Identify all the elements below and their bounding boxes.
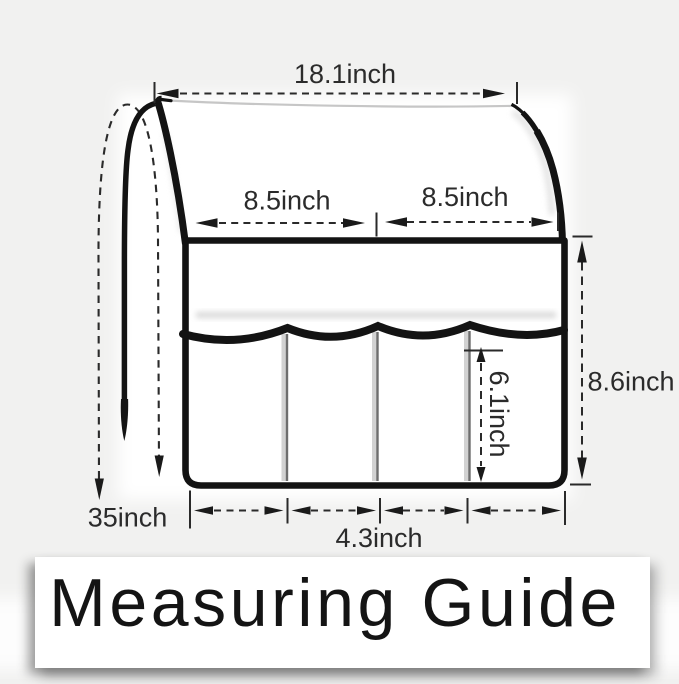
svg-text:8.5inch: 8.5inch [243, 186, 330, 216]
svg-text:6.1inch: 6.1inch [484, 370, 514, 457]
svg-text:35inch: 35inch [88, 503, 168, 533]
svg-text:8.5inch: 8.5inch [421, 182, 508, 212]
svg-text:8.6inch: 8.6inch [588, 367, 675, 397]
svg-text:18.1inch: 18.1inch [294, 59, 396, 89]
svg-text:4.3inch: 4.3inch [335, 523, 422, 553]
